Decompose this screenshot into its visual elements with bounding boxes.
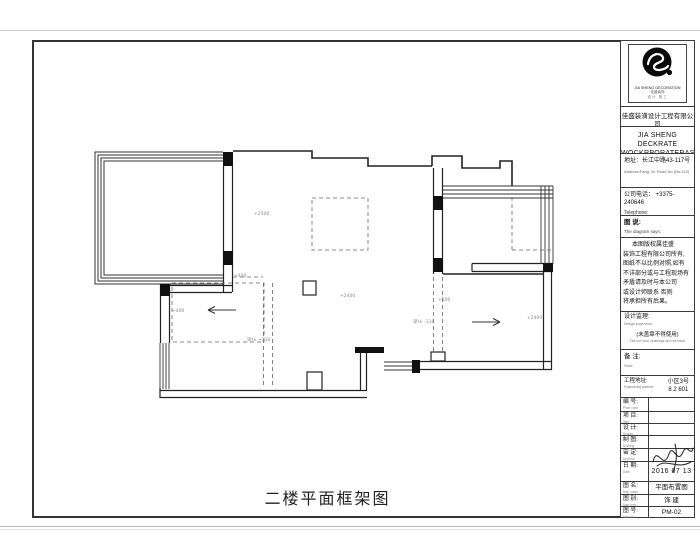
remark-en: Note: [624, 363, 692, 368]
company-name-en-line1: JIA SHENG DECKRATE [621, 131, 694, 149]
stamp-notice: (未盖章不得使用) Did not seal, drawings are not… [621, 331, 694, 349]
logo-monogram-icon [629, 45, 686, 81]
map-type-value: 饰 建 [649, 495, 694, 506]
company-name-zh: 佳盛装潢设计工程有限公司 [621, 106, 694, 126]
note-line: 不详部分或与工程现场有 [623, 270, 693, 280]
note-line: 或设计师联系 否则 [623, 289, 693, 299]
logo-subcaption-2: 设计·施工 [629, 95, 686, 99]
project-address-value1: 小区3号 [668, 378, 689, 386]
design-supervisor-en: Design supervisor: [624, 322, 692, 326]
note-line: 图纸不以比例对照,如有 [623, 260, 693, 270]
remark-zh: 备 注: [624, 353, 692, 361]
row-map-number: 图 号:Map No.: PM-02 [621, 506, 694, 518]
logo-section: JIA SHENG DECORATION 佳盛装饰 设计·施工 [621, 41, 694, 106]
project-address-zh: 工程地址: [624, 378, 654, 385]
note-line: 将承担所有后果。 [623, 298, 693, 308]
remark-section: 备 注: Note: [621, 349, 694, 375]
page-bottom-edge [0, 526, 700, 527]
diagram-says-en: The diagram says: [624, 229, 692, 235]
design-supervisor-zh: 设计监理: [624, 314, 692, 322]
title-block: JIA SHENG DECORATION 佳盛装饰 设计·施工 佳盛装潢设计工程… [620, 40, 695, 518]
project-address-value2: 8 2 601 [668, 386, 689, 394]
stamp-notice-zh: (未盖章不得使用) [621, 332, 694, 339]
company-name-en: JIA SHENG DECKRATE WOCKRPORATERAS [621, 126, 694, 153]
project-address-en: Engineering address: [624, 385, 654, 389]
company-address: 地址：长江中路43-117号 Address:Fang, W. Road No.… [621, 153, 694, 187]
copyright-notes: 本图版权属佳盛 装饰工程有限公司所有, 图纸不以比例对照,如有 不详部分或与工程… [621, 237, 694, 311]
company-address-en: Address:Fang, W. Road No.(No:113) [624, 169, 692, 174]
diagram-says-zh: 图 说: [624, 219, 692, 227]
company-logo: JIA SHENG DECORATION 佳盛装饰 设计·施工 [628, 44, 687, 103]
company-address-zh: 地址：长江中路43-117号 [624, 158, 692, 166]
note-line: 装饰工程有限公司所有, [623, 251, 693, 261]
signature-scribble [647, 432, 694, 486]
company-phone: 公司电话： +3375-240646 Telephone: [621, 187, 694, 215]
row-map-type: 图 别:Map type: 饰 建 [621, 494, 694, 506]
drawing-frame [32, 40, 695, 518]
note-line: 矛盾请及时与本公司 [623, 279, 693, 289]
company-phone-zh: 公司电话： +3375-240646 [624, 192, 692, 207]
project-address: 工程地址: Engineering address: 小区3号 8 2 601 [621, 375, 694, 397]
stamp-notice-en: Did not seal, drawings are not used [621, 339, 694, 343]
note-line: 本图版权属佳盛 [623, 241, 693, 251]
row-item: 项 目:Item: [621, 411, 694, 423]
map-number-value: PM-02 [649, 507, 694, 518]
row-plate-code: 编 号:Plate code: [621, 398, 694, 411]
title-block-table: 编 号:Plate code: 项 目:Item: 设 计:Design: 制 … [621, 397, 694, 518]
design-supervisor: 设计监理: Design supervisor: [621, 311, 694, 331]
page-bottom-edge-shadow [0, 529, 700, 530]
diagram-says-header: 图 说: The diagram says: [621, 215, 694, 237]
page-top-edge [0, 30, 700, 31]
drawing-title: 二楼平面框架图 [235, 485, 420, 509]
